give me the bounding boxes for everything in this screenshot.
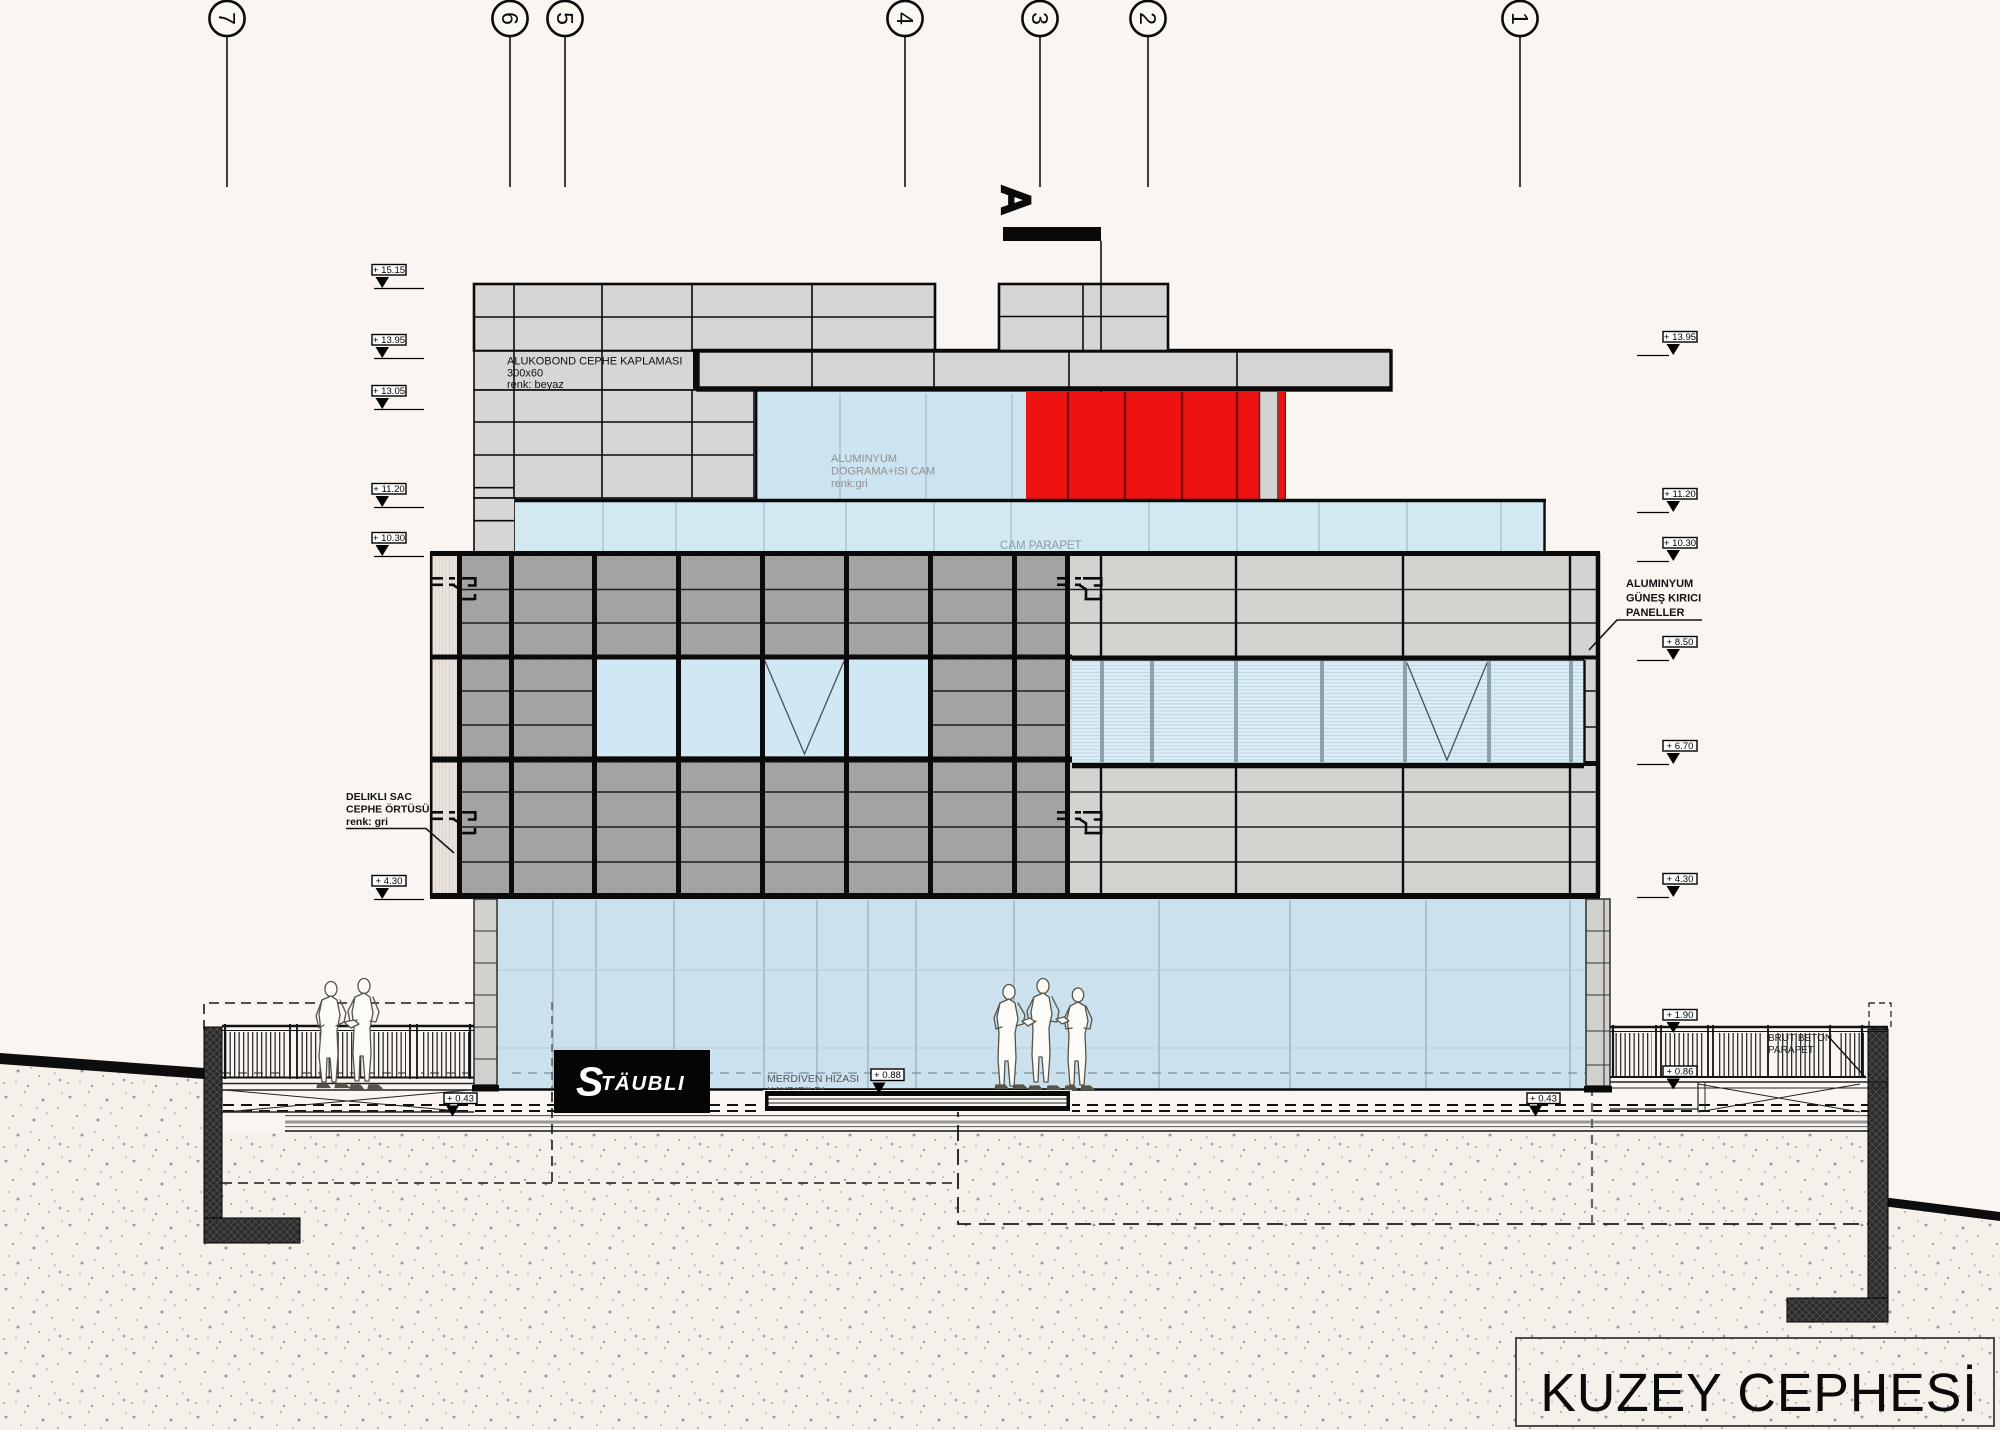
svg-text:+ 6.70: + 6.70 — [1667, 741, 1694, 752]
svg-text:CEPHE ÖRTÜSÜ: CEPHE ÖRTÜSÜ — [346, 803, 429, 816]
svg-text:+ 0.43: + 0.43 — [1530, 1094, 1557, 1105]
svg-text:renk:gri: renk:gri — [831, 478, 868, 490]
svg-text:PARAPET: PARAPET — [1768, 1045, 1814, 1056]
svg-text:6: 6 — [497, 12, 523, 25]
svg-text:4: 4 — [892, 12, 918, 25]
svg-text:+ 15.15: + 15.15 — [373, 265, 405, 276]
svg-text:+ 13.95: + 13.95 — [373, 335, 405, 346]
svg-text:MERDİVEN HİZASI: MERDİVEN HİZASI — [767, 1072, 859, 1085]
svg-text:300x60: 300x60 — [507, 368, 543, 380]
svg-text:+ 11.20: + 11.20 — [1664, 489, 1696, 500]
svg-text:+ 13.05: + 13.05 — [373, 386, 405, 397]
svg-text:CAM PARAPET: CAM PARAPET — [1000, 540, 1082, 552]
svg-text:+ 11.20: + 11.20 — [373, 484, 405, 495]
svg-text:renk: beyaz: renk: beyaz — [507, 379, 564, 391]
svg-text:PANELLER: PANELLER — [1626, 607, 1685, 619]
svg-text:+ 13.95: + 13.95 — [1664, 332, 1696, 343]
svg-text:1: 1 — [1507, 12, 1533, 25]
svg-text:DELIKLI SAC: DELIKLI SAC — [346, 791, 412, 803]
svg-text:2: 2 — [1135, 12, 1161, 25]
svg-text:+ 4.30: + 4.30 — [376, 876, 403, 887]
svg-text:+ 4.30: + 4.30 — [1667, 874, 1694, 885]
svg-text:3: 3 — [1027, 12, 1053, 25]
svg-text:+ 0.86: + 0.86 — [1667, 1067, 1694, 1078]
svg-text:+ 0.43: + 0.43 — [447, 1094, 474, 1105]
svg-text:+ 0.88: + 0.88 — [874, 1070, 901, 1081]
svg-text:renk: gri: renk: gri — [346, 816, 388, 828]
svg-text:+ 10.30: + 10.30 — [373, 533, 405, 544]
svg-text:7: 7 — [214, 12, 240, 25]
svg-text:TÄUBLI: TÄUBLI — [601, 1072, 685, 1095]
svg-text:5: 5 — [552, 12, 578, 25]
svg-text:BRUT BETON: BRUT BETON — [1768, 1033, 1832, 1044]
svg-text:A: A — [993, 185, 1040, 215]
svg-text:+ 1.90: + 1.90 — [1667, 1010, 1694, 1021]
svg-text:ALUKOBOND CEPHE KAPLAMASI: ALUKOBOND CEPHE KAPLAMASI — [507, 356, 682, 368]
svg-text:GÜNEŞ KIRICI: GÜNEŞ KIRICI — [1626, 592, 1701, 605]
svg-text:+ 10.30: + 10.30 — [1664, 538, 1696, 549]
svg-text:S: S — [576, 1059, 603, 1105]
svg-text:KUZEY CEPHESİ: KUZEY CEPHESİ — [1540, 1364, 1978, 1423]
svg-text:+ 8.50: + 8.50 — [1667, 637, 1694, 648]
svg-text:DOGRAMA+ISI CAM: DOGRAMA+ISI CAM — [831, 466, 935, 478]
svg-text:ALUMINYUM: ALUMINYUM — [831, 453, 897, 465]
svg-text:ALUMINYUM: ALUMINYUM — [1626, 578, 1693, 590]
